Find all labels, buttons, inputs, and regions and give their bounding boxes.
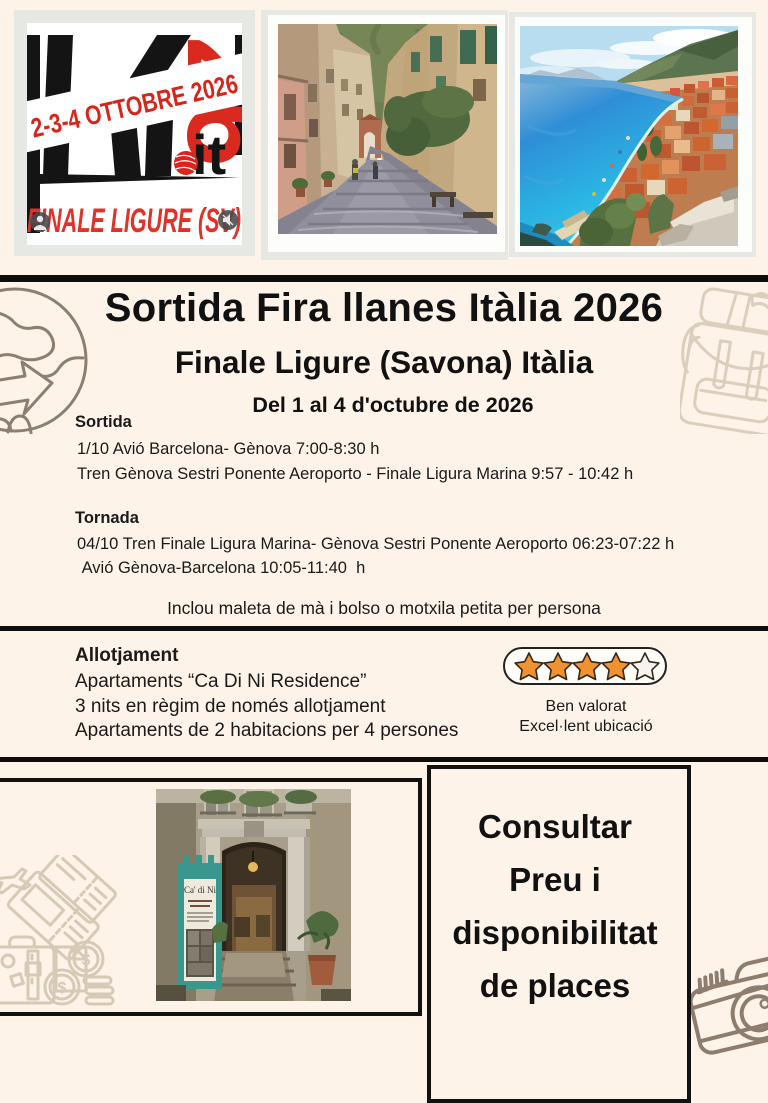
svg-text:Ca' di Ni: Ca' di Ni [184,885,217,895]
svg-text:it: it [192,123,226,186]
svg-text:FINALE LIGURE (SV): FINALE LIGURE (SV) [27,202,241,240]
